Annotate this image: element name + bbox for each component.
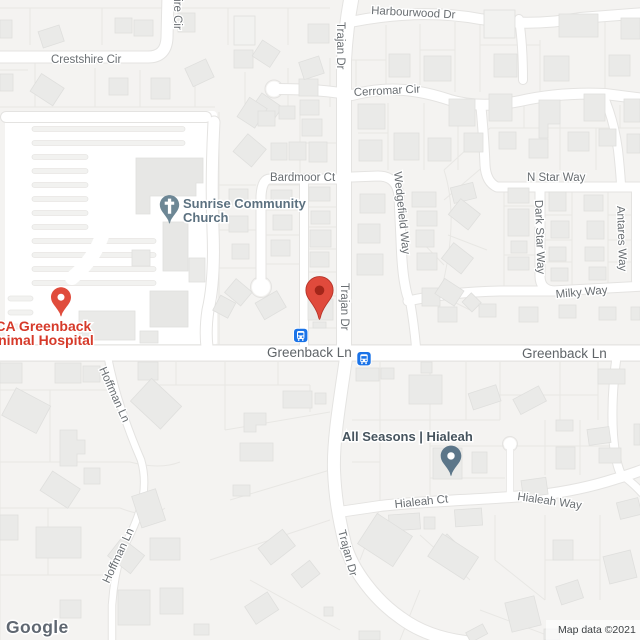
svg-text:Bardmoor Ct: Bardmoor Ct bbox=[270, 172, 336, 184]
svg-text:Church: Church bbox=[183, 210, 229, 225]
svg-text:Google: Google bbox=[6, 617, 69, 637]
svg-text:Greenback Ln: Greenback Ln bbox=[522, 346, 607, 361]
svg-text:Trajan Dr: Trajan Dr bbox=[334, 22, 346, 70]
svg-text:Greenback Ln: Greenback Ln bbox=[267, 345, 352, 360]
svg-text:Crestshire Cir: Crestshire Cir bbox=[51, 54, 121, 66]
svg-text:N Star Way: N Star Way bbox=[527, 172, 586, 184]
svg-text:shire Cir: shire Cir bbox=[171, 0, 183, 30]
svg-text:Map data ©2021: Map data ©2021 bbox=[558, 624, 636, 636]
svg-text:All Seasons | Hialeah: All Seasons | Hialeah bbox=[342, 429, 473, 444]
svg-text:Trajan Dr: Trajan Dr bbox=[338, 283, 350, 331]
svg-text:Sunrise Community: Sunrise Community bbox=[183, 196, 307, 211]
svg-text:Animal Hospital: Animal Hospital bbox=[0, 332, 94, 348]
svg-text:Antares Way: Antares Way bbox=[614, 206, 628, 272]
